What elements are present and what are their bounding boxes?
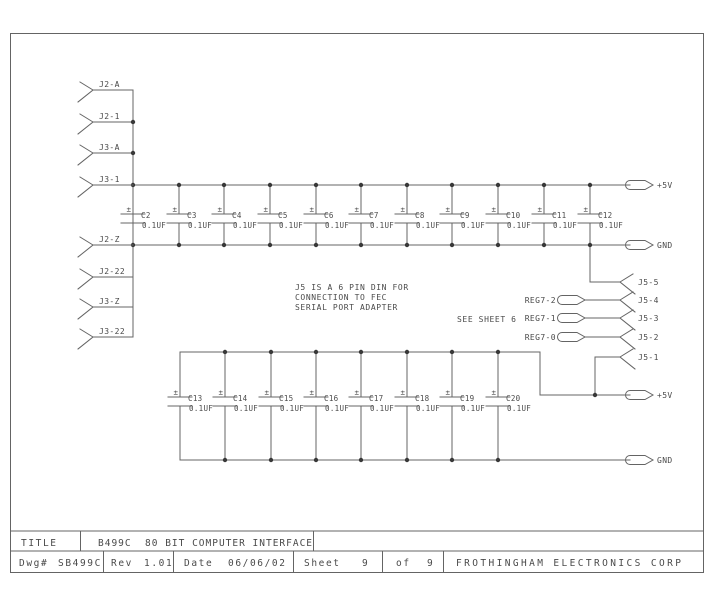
capacitor-value-label: 0.1UF <box>325 404 349 413</box>
junction-dot <box>268 183 272 187</box>
capacitor-value-label: 0.1UF <box>461 404 485 413</box>
power-terminal-label: GND <box>657 456 673 465</box>
polarity-mark: ± <box>126 205 131 214</box>
polarity-mark: ± <box>263 205 268 214</box>
date-label: Date <box>184 558 213 569</box>
capacitor-value-label: 0.1UF <box>234 404 258 413</box>
connector-arrow-icon <box>620 349 635 369</box>
polarity-mark: ± <box>445 388 450 397</box>
connector-label: J5-2 <box>638 333 659 342</box>
polarity-mark: ± <box>400 388 405 397</box>
title-label: TITLE <box>21 538 58 549</box>
junction-dot <box>223 458 227 462</box>
polarity-mark: ± <box>354 205 359 214</box>
capacitor-c15: ±C150.1UF <box>259 350 304 462</box>
junction-dot <box>450 183 454 187</box>
junction-dot <box>222 243 226 247</box>
junction-dot <box>405 243 409 247</box>
capacitor-ref-label: C20 <box>506 394 521 403</box>
junction-dot <box>588 183 592 187</box>
power-terminal-5v-0: +5V <box>626 181 673 191</box>
title-block: TITLE B499C 80 BIT COMPUTER INTERFACE Dw… <box>11 531 704 573</box>
polarity-mark: ± <box>583 205 588 214</box>
connector-arrow-icon <box>78 177 93 197</box>
capacitor-ref-label: C5 <box>278 211 288 220</box>
connector-arrow-icon <box>78 299 93 319</box>
capacitor-ref-label: C16 <box>324 394 339 403</box>
capacitor-value-label: 0.1UF <box>416 404 440 413</box>
connector-j5-3: J5-3 <box>620 310 659 330</box>
junction-dot <box>405 183 409 187</box>
capacitor-c8: ±C80.1UF <box>395 183 440 247</box>
polarity-mark: ± <box>400 205 405 214</box>
polarity-mark: ± <box>217 205 222 214</box>
capacitor-ref-label: C12 <box>598 211 612 220</box>
terminal-flag-icon <box>558 296 586 305</box>
junction-dot <box>450 243 454 247</box>
capacitor-value-label: 0.1UF <box>553 221 577 230</box>
capacitor-c13: ±C130.1UF <box>168 352 213 460</box>
connector-j5-4: J5-4 <box>620 292 659 312</box>
company-name: FROTHINGHAM ELECTRONICS CORP <box>456 558 683 569</box>
rev-value: 1.01 <box>144 558 173 569</box>
connector-arrow-icon <box>620 292 635 312</box>
power-terminal-5v-2: +5V <box>626 391 673 401</box>
connector-j5-5: J5-5 <box>620 274 659 294</box>
capacitor-ref-label: C4 <box>232 211 242 220</box>
power-terminal-label: GND <box>657 241 673 250</box>
capacitor-value-label: 0.1UF <box>599 221 623 230</box>
junction-dot <box>542 183 546 187</box>
junction-dot <box>269 350 273 354</box>
capacitor-value-label: 0.1UF <box>142 221 166 230</box>
capacitor-c20: ±C200.1UF <box>486 350 531 462</box>
connector-j3-a: J3-A <box>78 143 133 165</box>
junction-dot <box>588 243 592 247</box>
connector-arrow-icon <box>78 114 93 134</box>
terminal-reg7-1: REG7-1 <box>525 314 620 324</box>
polarity-mark: ± <box>173 388 178 397</box>
connector-arrow-icon <box>78 145 93 165</box>
junction-dot <box>314 350 318 354</box>
junction-dot <box>131 151 135 155</box>
terminal-label: REG7-0 <box>525 333 556 342</box>
junction-dot <box>405 458 409 462</box>
junction-dot <box>496 243 500 247</box>
junction-dot <box>359 243 363 247</box>
connector-label: J5-1 <box>638 353 659 362</box>
capacitor-c6: ±C60.1UF <box>304 183 349 247</box>
connector-j5-1: J5-1 <box>620 349 659 369</box>
note-line-2: CONNECTION TO FEC <box>295 293 387 302</box>
capacitor-value-label: 0.1UF <box>507 221 531 230</box>
junction-dot <box>496 458 500 462</box>
junction-dot <box>496 183 500 187</box>
capacitor-c10: ±C100.1UF <box>486 183 531 247</box>
power-terminal-label: +5V <box>657 391 673 400</box>
connector-label: J5-5 <box>638 278 659 287</box>
polarity-mark: ± <box>491 205 496 214</box>
junction-dot <box>314 183 318 187</box>
junction-dot <box>268 243 272 247</box>
capacitor-ref-label: C6 <box>324 211 334 220</box>
connector-arrow-icon <box>78 269 93 289</box>
polarity-mark: ± <box>264 388 269 397</box>
capacitor-ref-label: C19 <box>460 394 474 403</box>
power-terminal-gnd-3: GND <box>626 456 673 466</box>
power-terminal-label: +5V <box>657 181 673 190</box>
polarity-mark: ± <box>172 205 177 214</box>
connector-arrow-icon <box>78 329 93 349</box>
polarity-mark: ± <box>309 388 314 397</box>
capacitor-c12: ±C120.1UF <box>578 183 623 247</box>
capacitor-c3: ±C30.1UF <box>167 183 212 247</box>
capacitor-ref-label: C18 <box>415 394 430 403</box>
capacitor-value-label: 0.1UF <box>233 221 257 230</box>
junction-dot <box>496 350 500 354</box>
sheet-number: 9 <box>362 558 369 569</box>
capacitor-c14: ±C140.1UF <box>213 350 258 462</box>
junction-dot <box>450 458 454 462</box>
capacitor-c7: ±C70.1UF <box>349 183 394 247</box>
connector-j2-z: J2-Z <box>78 235 133 257</box>
junction-dot <box>359 350 363 354</box>
connector-label: J3-Z <box>99 297 120 306</box>
connector-j2-22: J2-22 <box>78 267 133 289</box>
schematic-sheet: J5 IS A 6 PIN DIN FOR CONNECTION TO FEC … <box>0 0 717 605</box>
capacitor-c19: ±C190.1UF <box>440 350 485 462</box>
capacitor-value-label: 0.1UF <box>507 404 531 413</box>
sheet-label: Sheet <box>304 558 341 569</box>
capacitor-value-label: 0.1UF <box>280 404 304 413</box>
connector-j2-1: J2-1 <box>78 112 133 134</box>
capacitor-value-label: 0.1UF <box>279 221 303 230</box>
capacitor-c9: ±C90.1UF <box>440 183 485 247</box>
junction-dot <box>177 243 181 247</box>
connector-j3-z: J3-Z <box>78 297 133 319</box>
junction-dot <box>222 183 226 187</box>
connector-arrow-icon <box>620 310 635 330</box>
connector-label: J3-22 <box>99 327 125 336</box>
capacitor-value-label: 0.1UF <box>188 221 212 230</box>
terminal-flag-icon <box>558 314 586 323</box>
capacitor-ref-label: C17 <box>369 394 383 403</box>
capacitor-value-label: 0.1UF <box>189 404 213 413</box>
schematic-symbols: ±C20.1UF±C30.1UF±C40.1UF±C50.1UF±C60.1UF… <box>78 80 673 465</box>
terminal-label: REG7-1 <box>525 314 556 323</box>
drawing-title: B499C 80 BIT COMPUTER INTERFACE <box>98 538 313 549</box>
junction-dot <box>314 243 318 247</box>
see-sheet-note: SEE SHEET 6 <box>457 315 517 324</box>
capacitor-value-label: 0.1UF <box>370 221 394 230</box>
note-line-3: SERIAL PORT ADAPTER <box>295 303 398 312</box>
connector-label: J3-1 <box>99 175 120 184</box>
terminal-reg7-0: REG7-0 <box>525 333 620 343</box>
connector-label: J2-22 <box>99 267 125 276</box>
capacitor-c18: ±C180.1UF <box>395 350 440 462</box>
date-value: 06/06/02 <box>228 558 287 569</box>
capacitor-ref-label: C2 <box>141 211 151 220</box>
polarity-mark: ± <box>491 388 496 397</box>
junction-dot <box>314 458 318 462</box>
capacitor-c5: ±C50.1UF <box>258 183 303 247</box>
capacitor-c16: ±C160.1UF <box>304 350 349 462</box>
capacitor-ref-label: C13 <box>188 394 202 403</box>
power-terminal-gnd-1: GND <box>626 241 673 251</box>
polarity-mark: ± <box>218 388 223 397</box>
terminal-label: REG7-2 <box>525 296 556 305</box>
connector-label: J2-1 <box>99 112 120 121</box>
junction-dot <box>223 350 227 354</box>
connector-arrow-icon <box>620 329 635 349</box>
connector-j3-1: J3-1 <box>78 175 133 197</box>
rev-label: Rev <box>111 558 133 569</box>
connector-label: J3-A <box>99 143 120 152</box>
connector-j5-2: J5-2 <box>620 329 659 349</box>
capacitor-ref-label: C15 <box>279 394 293 403</box>
capacitor-ref-label: C11 <box>552 211 566 220</box>
capacitor-value-label: 0.1UF <box>370 404 394 413</box>
junction-dot <box>405 350 409 354</box>
capacitor-c4: ±C40.1UF <box>212 183 257 247</box>
dwg-number: SB499C <box>58 558 102 569</box>
junction-dot <box>269 458 273 462</box>
capacitor-ref-label: C8 <box>415 211 425 220</box>
capacitor-ref-label: C9 <box>460 211 470 220</box>
capacitor-value-label: 0.1UF <box>461 221 485 230</box>
connector-label: J2-Z <box>99 235 120 244</box>
polarity-mark: ± <box>537 205 542 214</box>
connector-arrow-icon <box>620 274 635 294</box>
connector-arrow-icon <box>78 237 93 257</box>
connector-arrow-icon <box>78 82 93 102</box>
dwg-label: Dwg# <box>19 558 48 569</box>
junction-dot <box>359 183 363 187</box>
note-line-1: J5 IS A 6 PIN DIN FOR <box>295 283 409 292</box>
capacitor-c11: ±C110.1UF <box>532 183 577 247</box>
connector-j2-a: J2-A <box>78 80 133 102</box>
junction-dot <box>542 243 546 247</box>
connector-label: J5-3 <box>638 314 659 323</box>
polarity-mark: ± <box>309 205 314 214</box>
polarity-mark: ± <box>354 388 359 397</box>
connector-j3-22: J3-22 <box>78 327 133 349</box>
capacitor-value-label: 0.1UF <box>416 221 440 230</box>
of-label: of <box>396 558 411 569</box>
terminal-flag-icon <box>558 333 586 342</box>
sheets-total: 9 <box>427 558 434 569</box>
capacitor-c17: ±C170.1UF <box>349 350 394 462</box>
capacitor-c2: ±C20.1UF <box>121 183 166 247</box>
capacitor-ref-label: C14 <box>233 394 248 403</box>
schematic-canvas: J5 IS A 6 PIN DIN FOR CONNECTION TO FEC … <box>0 0 717 605</box>
capacitor-ref-label: C7 <box>369 211 379 220</box>
capacitor-value-label: 0.1UF <box>325 221 349 230</box>
connector-label: J5-4 <box>638 296 659 305</box>
terminal-reg7-2: REG7-2 <box>525 296 620 306</box>
junction-dot <box>359 458 363 462</box>
junction-dot <box>450 350 454 354</box>
connector-label: J2-A <box>99 80 120 89</box>
junction-dot <box>131 120 135 124</box>
junction-dot <box>593 393 597 397</box>
capacitor-ref-label: C3 <box>187 211 197 220</box>
polarity-mark: ± <box>445 205 450 214</box>
junction-dot <box>177 183 181 187</box>
capacitor-ref-label: C10 <box>506 211 521 220</box>
